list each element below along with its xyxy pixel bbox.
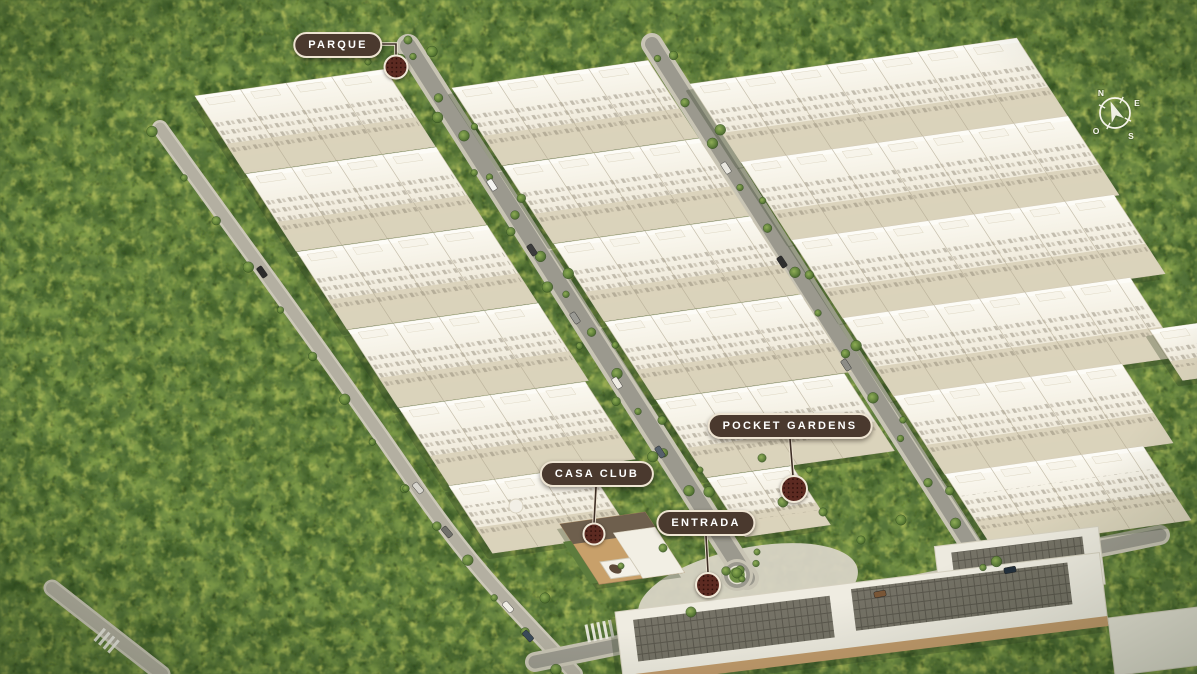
compass-label-west: O <box>1093 126 1100 136</box>
label-pocket-gardens[interactable]: POCKET GARDENS <box>708 413 873 439</box>
label-parque[interactable]: PARQUE <box>293 32 382 58</box>
masterplan-render: N E S O PARQUE POCKET GARDENS CASA CLUB … <box>0 0 1197 674</box>
label-casa-club[interactable]: CASA CLUB <box>540 461 654 487</box>
compass-label-north: N <box>1098 88 1104 98</box>
pocket-gardens-marker[interactable] <box>780 475 808 503</box>
casa-club-marker[interactable] <box>583 523 606 546</box>
aerial-render: N E S O <box>0 0 1197 674</box>
parque-marker[interactable] <box>384 55 409 80</box>
compass-label-south: S <box>1128 131 1134 141</box>
vignette <box>0 0 1197 674</box>
entrada-marker[interactable] <box>695 572 721 598</box>
compass-label-east: E <box>1134 98 1140 108</box>
label-entrada[interactable]: ENTRADA <box>656 510 755 536</box>
